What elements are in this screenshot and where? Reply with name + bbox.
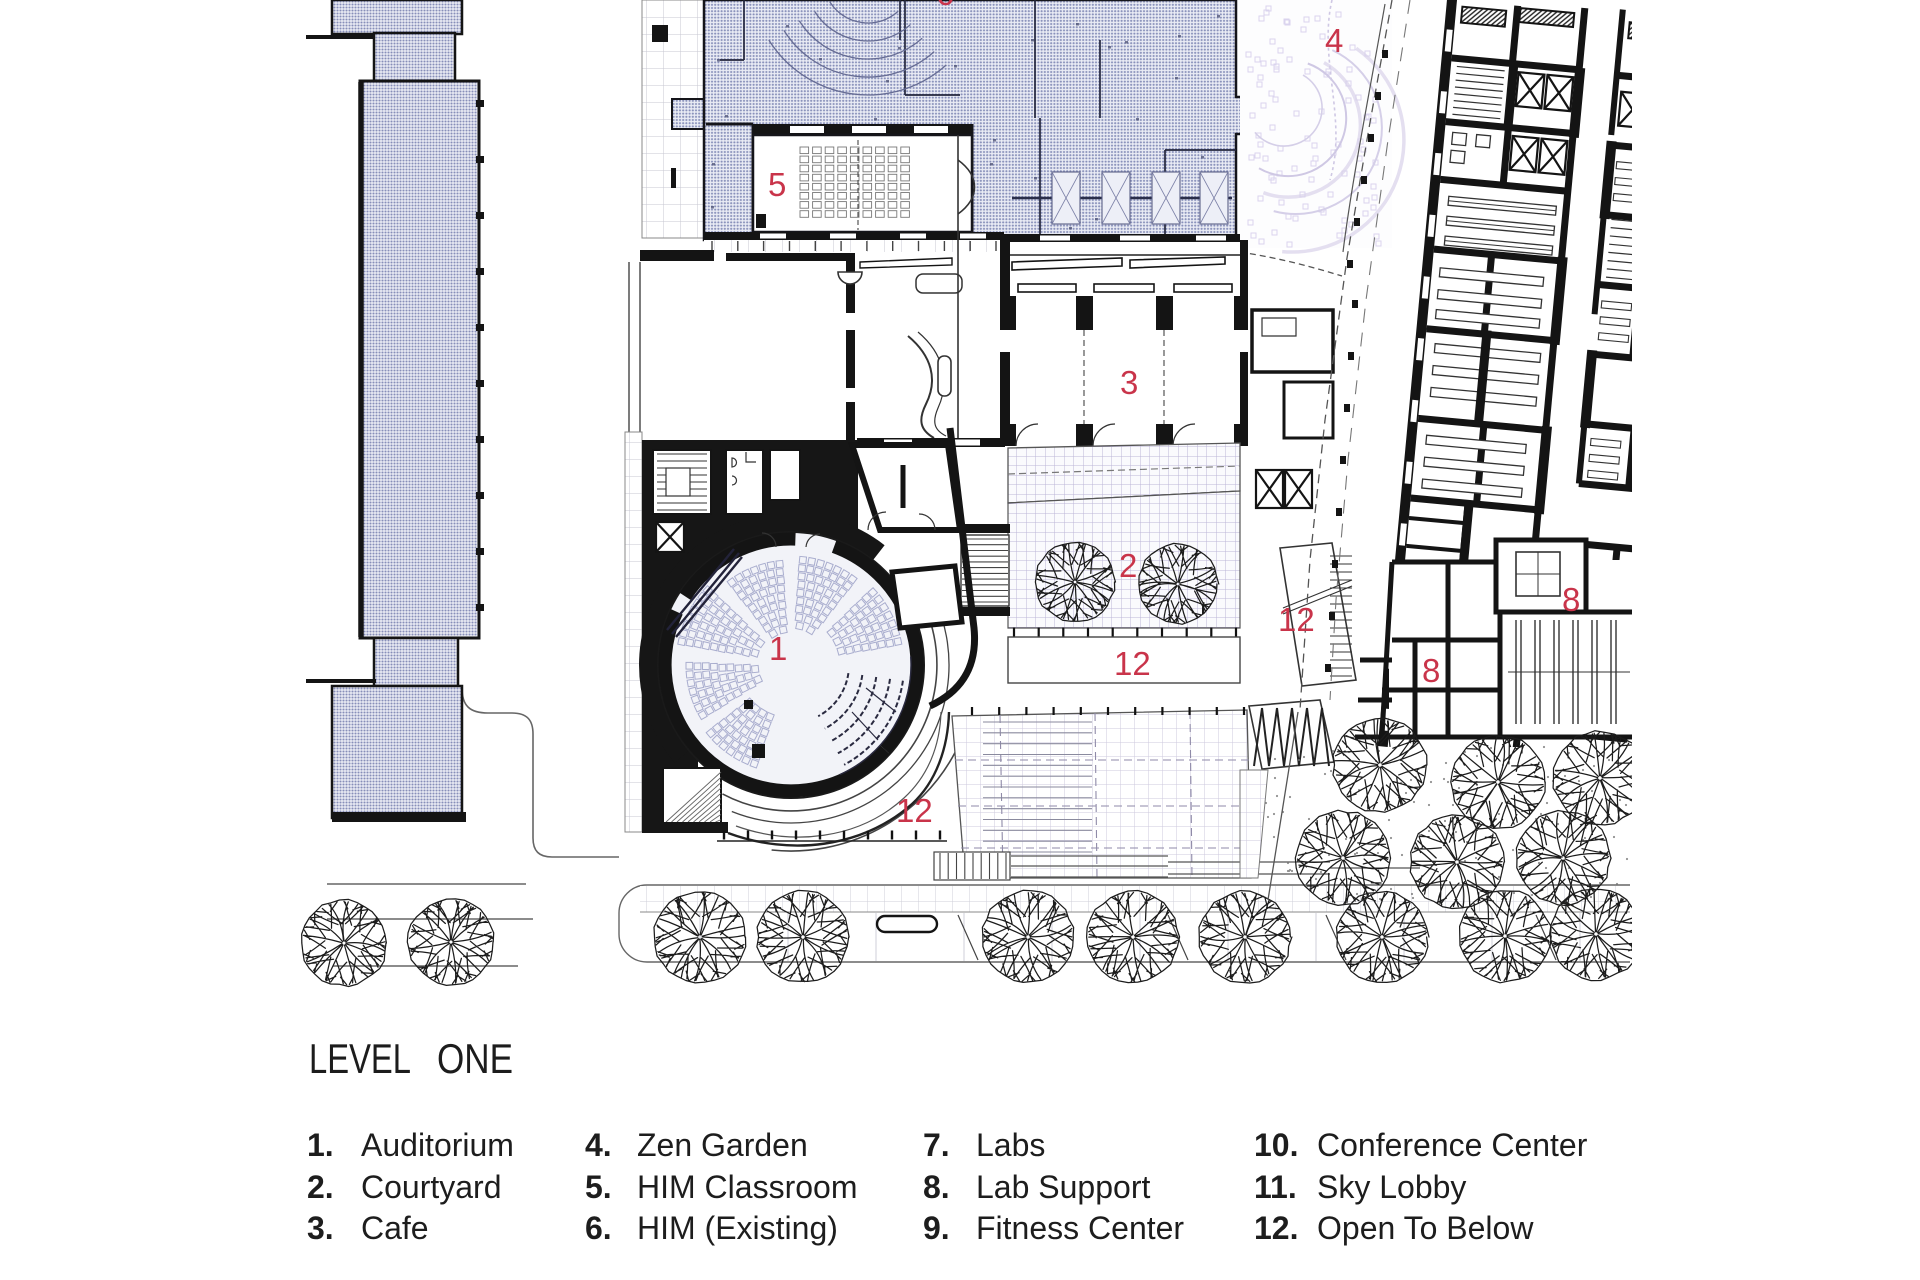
svg-text:3: 3 (1120, 364, 1138, 401)
svg-text:6.: 6. (585, 1210, 612, 1246)
svg-text:Labs: Labs (976, 1127, 1045, 1163)
svg-text:Lab Support: Lab Support (976, 1169, 1150, 1205)
svg-text:Conference Center: Conference Center (1317, 1127, 1588, 1163)
svg-text:Courtyard: Courtyard (361, 1169, 502, 1205)
svg-text:12: 12 (896, 792, 933, 829)
svg-text:Open To Below: Open To Below (1317, 1210, 1534, 1246)
svg-text:9.: 9. (923, 1210, 950, 1246)
svg-text:8: 8 (1562, 581, 1580, 618)
svg-text:Cafe: Cafe (361, 1210, 429, 1246)
svg-text:HIM (Existing): HIM (Existing) (637, 1210, 838, 1246)
svg-text:ONE: ONE (437, 1035, 513, 1082)
svg-text:Zen Garden: Zen Garden (637, 1127, 808, 1163)
svg-text:4: 4 (1325, 22, 1343, 59)
svg-text:12: 12 (1114, 645, 1151, 682)
svg-text:10.: 10. (1254, 1127, 1298, 1163)
svg-text:Auditorium: Auditorium (361, 1127, 514, 1163)
svg-text:1: 1 (769, 630, 787, 667)
svg-text:11.: 11. (1254, 1169, 1297, 1205)
svg-text:1.: 1. (307, 1127, 334, 1163)
svg-text:Fitness Center: Fitness Center (976, 1210, 1184, 1246)
svg-text:8: 8 (1422, 652, 1440, 689)
svg-text:8.: 8. (923, 1169, 950, 1205)
svg-text:12.: 12. (1254, 1210, 1298, 1246)
svg-text:5.: 5. (585, 1169, 612, 1205)
svg-text:5: 5 (768, 166, 786, 203)
svg-text:2.: 2. (307, 1169, 334, 1205)
svg-text:2: 2 (1119, 547, 1137, 584)
svg-text:7.: 7. (923, 1127, 950, 1163)
svg-text:Sky Lobby: Sky Lobby (1317, 1169, 1466, 1205)
svg-text:12: 12 (1278, 601, 1315, 638)
svg-text:LEVEL: LEVEL (309, 1035, 411, 1082)
svg-text:3.: 3. (307, 1210, 334, 1246)
svg-text:6: 6 (936, 0, 954, 12)
svg-text:4.: 4. (585, 1127, 612, 1163)
svg-text:HIM Classroom: HIM Classroom (637, 1169, 857, 1205)
